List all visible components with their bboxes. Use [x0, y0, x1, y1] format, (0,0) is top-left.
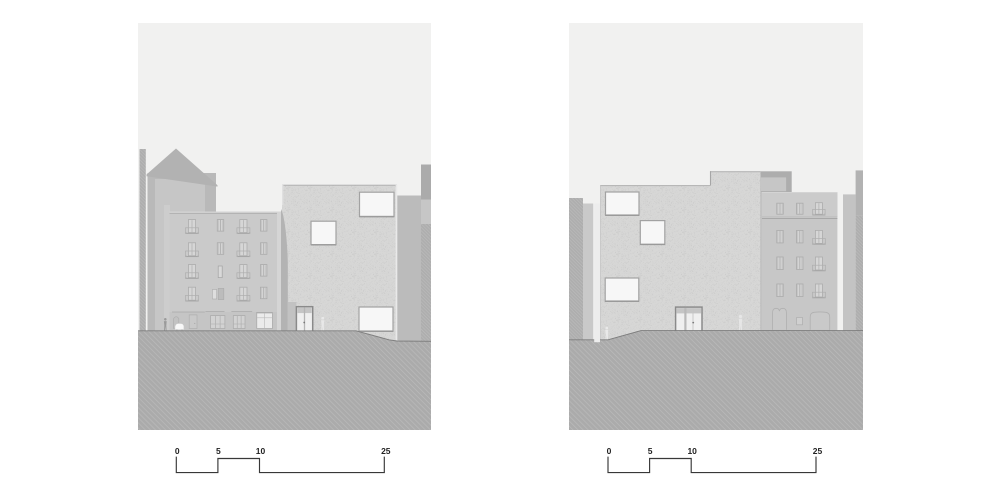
- svg-text:0: 0: [175, 446, 180, 456]
- svg-text:10: 10: [687, 446, 697, 456]
- svg-text:5: 5: [216, 446, 221, 456]
- svg-text:5: 5: [648, 446, 653, 456]
- svg-text:0: 0: [607, 446, 612, 456]
- svg-text:10: 10: [256, 446, 266, 456]
- svg-text:25: 25: [813, 446, 823, 456]
- svg-text:25: 25: [381, 446, 391, 456]
